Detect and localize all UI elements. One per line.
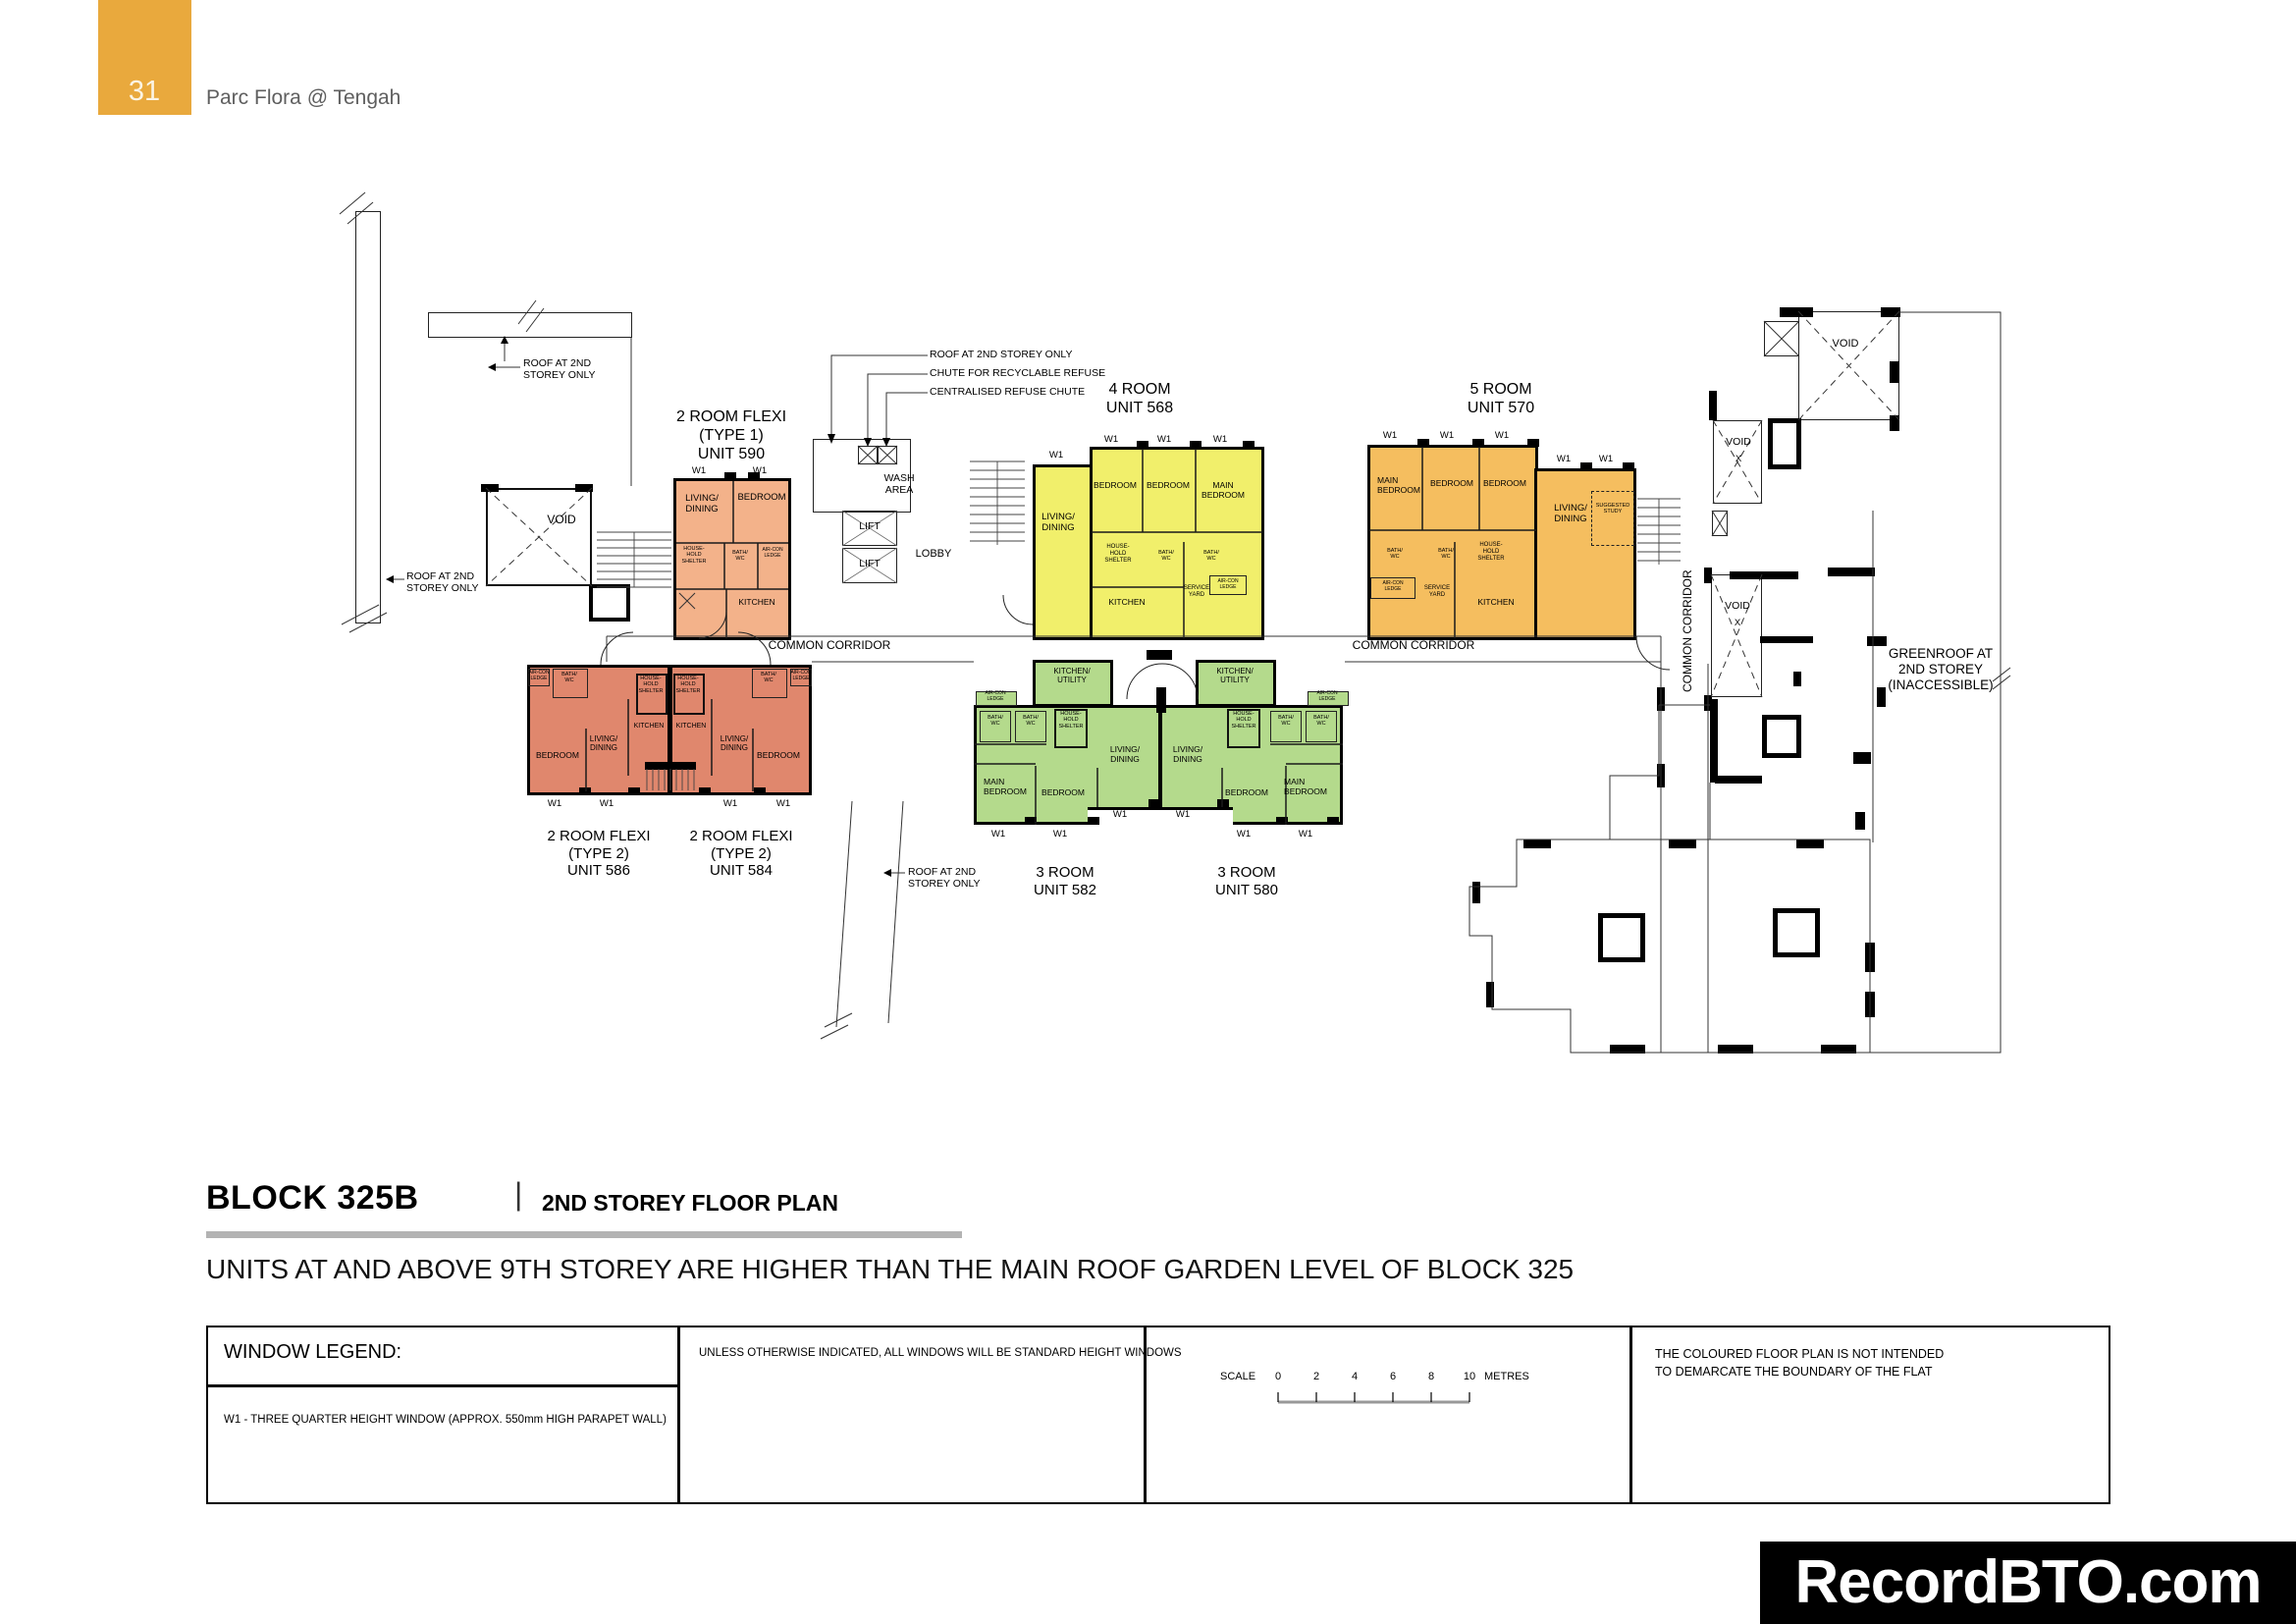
room-label-living: LIVING/DINING	[721, 734, 748, 753]
room-label-bath: BATH/WC	[732, 550, 748, 563]
room-label-kitchen: KITCHEN	[676, 723, 707, 731]
wall-segment	[1780, 307, 1813, 317]
legend-divider	[1629, 1326, 1632, 1504]
window-w1: W1	[1237, 829, 1251, 839]
coloured-note-line1: THE COLOURED FLOOR PLAN IS NOT INTENDED	[1655, 1347, 1944, 1362]
suggested-study-outline	[1591, 491, 1634, 546]
window-pier	[1217, 799, 1229, 807]
unit-584-title: 2 ROOM FLEXI (TYPE 2) UNIT 584	[689, 828, 792, 880]
wall-segment	[1715, 776, 1762, 784]
window-w1: W1	[1113, 809, 1127, 820]
void-room-3	[1711, 574, 1762, 697]
callout-refuse-chute: CENTRALISED REFUSE CHUTE	[930, 386, 1085, 398]
room-label-bath: BATH/WC	[1158, 550, 1174, 563]
lobby-label: LOBBY	[916, 548, 952, 561]
room-label-bath: BATH/WC	[561, 672, 577, 684]
wall-segment	[1855, 812, 1865, 830]
wall-segment	[1610, 1045, 1645, 1054]
wall-segment	[1709, 391, 1717, 420]
room-label-kitchen-utility: KITCHEN/UTILITY	[1053, 667, 1090, 685]
w1-definition: W1 - THREE QUARTER HEIGHT WINDOW (APPROX…	[224, 1414, 667, 1428]
window-pier	[699, 787, 711, 795]
project-name: Parc Flora @ Tengah	[206, 86, 400, 111]
window-pier	[1190, 441, 1201, 449]
wall-segment	[1821, 1045, 1856, 1054]
roof-strip-horizontal	[428, 312, 632, 338]
room-label-bath: BATH/WC	[1313, 715, 1329, 728]
wall-segment	[1704, 568, 1712, 583]
window-w1: W1	[1299, 829, 1312, 839]
scale-label: SCALE	[1220, 1371, 1255, 1383]
scale-tick: 8	[1428, 1371, 1434, 1383]
room-label-service-yard: SERVICEYARD	[1184, 585, 1209, 599]
scale-unit: METRES	[1484, 1371, 1529, 1383]
unit-570-main-wing	[1367, 445, 1538, 640]
scale-tick: 10	[1464, 1371, 1475, 1383]
room-label-household-shelter: HOUSE-HOLDSHELTER	[1477, 542, 1504, 563]
wall-segment	[1730, 571, 1798, 579]
room-label-household-shelter: HOUSE-HOLDSHELTER	[1104, 544, 1131, 565]
scale-tick: 4	[1352, 1371, 1358, 1383]
room-label-aircon: AIR-CONLEDGE	[1316, 691, 1337, 703]
window-w1: W1	[991, 829, 1005, 839]
room-label-bedroom: BEDROOM	[1147, 480, 1190, 490]
room-label-living: LIVING/DINING	[1110, 744, 1140, 764]
window-pier	[1025, 817, 1037, 825]
shaft-box	[1762, 715, 1801, 758]
void-label: VOID	[1833, 338, 1859, 351]
room-label-kitchen: KITCHEN	[738, 597, 774, 607]
wall-segment	[1523, 839, 1551, 848]
room-label-main-bedroom: MAINBEDROOM	[1377, 475, 1420, 495]
wash-area-label: WASH AREA	[883, 472, 914, 497]
legend-header-divider	[206, 1384, 677, 1387]
wall-segment	[1156, 687, 1166, 713]
shaft-box	[1768, 418, 1801, 469]
room-label-living: LIVING/DINING	[685, 493, 719, 514]
wall-segment	[1796, 839, 1824, 848]
room-label-aircon: AIR-CONLEDGE	[1382, 581, 1403, 593]
unit-582-title: 3 ROOM UNIT 582	[1034, 864, 1096, 898]
scale-tick: 6	[1390, 1371, 1396, 1383]
window-pier	[1088, 817, 1099, 825]
window-w1: W1	[1495, 430, 1509, 441]
void-label: VOID	[547, 513, 575, 526]
greenroof-label: GREENROOF AT 2ND STOREY (INACCESSIBLE)	[1888, 646, 1993, 693]
coloured-note-line2: TO DEMARCATE THE BOUNDARY OF THE FLAT	[1655, 1365, 1932, 1380]
room-label-kitchen-utility: KITCHEN/UTILITY	[1216, 667, 1253, 685]
unit-580-title: 3 ROOM UNIT 580	[1215, 864, 1278, 898]
room-label-bath: BATH/WC	[1438, 548, 1454, 561]
room-label-bath: BATH/WC	[1203, 550, 1219, 563]
shaft-box	[1598, 913, 1645, 962]
legend-divider	[677, 1326, 680, 1504]
room-label-aircon: AIR-CONLEDGE	[790, 671, 811, 682]
window-w1: W1	[1157, 434, 1171, 445]
room-label-living: LIVING/DINING	[1173, 744, 1202, 764]
unit-568-living-wing	[1033, 464, 1094, 640]
window-w1: W1	[723, 798, 737, 809]
window-w1: W1	[600, 798, 614, 809]
void-label: VOID	[1726, 436, 1751, 448]
window-w1: W1	[1176, 809, 1190, 820]
unit-568-title: 4 ROOM UNIT 568	[1106, 381, 1173, 418]
wall-segment	[1865, 943, 1875, 972]
room-label-bedroom: BEDROOM	[1094, 480, 1137, 490]
wall-segment	[1710, 699, 1718, 783]
wall-segment	[1890, 415, 1899, 431]
void-x: X	[1735, 618, 1740, 628]
common-corridor-label-vertical: COMMON CORRIDOR	[1681, 535, 1698, 692]
page-number: 31	[129, 75, 160, 108]
common-corridor-label: COMMON CORRIDOR	[1353, 638, 1475, 652]
callout-roof: ROOF AT 2ND STOREY ONLY	[930, 349, 1072, 360]
room-label-main-bedroom: MAINBEDROOM	[1201, 480, 1245, 500]
room-label-service-yard: SERVICEYARD	[1424, 585, 1450, 599]
wall-segment	[1657, 764, 1665, 787]
room-label-bath: BATH/WC	[761, 672, 776, 684]
wall-segment	[481, 484, 499, 492]
window-w1: W1	[692, 465, 706, 476]
storey-title: 2ND STOREY FLOOR PLAN	[542, 1190, 838, 1217]
window-w1: W1	[1049, 450, 1063, 460]
room-label-household-shelter: HOUSE-HOLDSHELTER	[676, 676, 701, 694]
void-label: VOID	[1725, 600, 1750, 612]
window-w1: W1	[753, 465, 767, 476]
room-label-bath: BATH/WC	[1387, 548, 1403, 561]
annotation-roof-3: ROOF AT 2ND STOREY ONLY	[908, 866, 981, 891]
window-pier	[1137, 441, 1148, 449]
recyclable-chute-box	[858, 446, 878, 464]
unit-590-title: 2 ROOM FLEXI (TYPE 1) UNIT 590	[676, 408, 786, 464]
room-label-aircon: AIR-CONLEDGE	[762, 548, 782, 560]
party-wall	[1158, 705, 1162, 807]
window-pier	[1417, 439, 1429, 447]
title-underline	[206, 1231, 962, 1238]
wall-segment	[1657, 687, 1665, 711]
window-w1: W1	[1599, 454, 1613, 464]
wall-segment	[1669, 839, 1696, 848]
callout-recyclable-chute: CHUTE FOR RECYCLABLE REFUSE	[930, 367, 1105, 379]
storey-note: UNITS AT AND ABOVE 9TH STOREY ARE HIGHER…	[206, 1253, 1574, 1285]
room-label-bath: BATH/WC	[1023, 715, 1039, 728]
room-label-household-shelter: HOUSE-HOLDSHELTER	[1059, 711, 1084, 730]
watermark-banner: RecordBTO.com	[1760, 1542, 2296, 1624]
living-bay-notch	[1088, 807, 1233, 827]
room-label-living: LIVING/DINING	[590, 734, 617, 753]
wall-segment	[1793, 672, 1801, 686]
room-label-bedroom: BEDROOM	[1430, 478, 1473, 488]
window-pier	[1580, 462, 1592, 470]
wall-segment	[575, 484, 593, 492]
windows-note: UNLESS OTHERWISE INDICATED, ALL WINDOWS …	[699, 1347, 1182, 1361]
window-w1: W1	[548, 798, 561, 809]
window-w1: W1	[1213, 434, 1227, 445]
room-label-bedroom: BEDROOM	[1225, 787, 1268, 797]
room-label-kitchen: KITCHEN	[634, 723, 665, 731]
wall-segment	[1718, 1045, 1753, 1054]
wall-segment	[645, 762, 696, 770]
room-label-bedroom: BEDROOM	[757, 750, 800, 760]
wall-segment	[1472, 882, 1480, 903]
annotation-roof-2: ROOF AT 2ND STOREY ONLY	[406, 570, 479, 595]
room-label-kitchen: KITCHEN	[1477, 597, 1514, 607]
x-box	[1712, 511, 1728, 536]
void-room-left	[486, 488, 592, 586]
room-label-bedroom: BEDROOM	[737, 492, 785, 503]
window-pier	[628, 787, 640, 795]
window-pier	[1243, 441, 1255, 449]
refuse-chute-box	[878, 446, 897, 464]
room-label-living: LIVING/DINING	[1554, 503, 1587, 524]
stair-core-box	[589, 584, 630, 622]
wall-segment	[1147, 650, 1172, 660]
room-label-study: SUGGESTEDSTUDY	[1596, 503, 1630, 515]
window-pier	[1276, 817, 1288, 825]
window-pier	[1472, 439, 1484, 447]
window-w1: W1	[1104, 434, 1118, 445]
room-label-main-bedroom: MAINBEDROOM	[1284, 777, 1327, 796]
void-room-topright	[1798, 311, 1899, 420]
scale-tick: 0	[1275, 1371, 1281, 1383]
wall-segment	[1828, 568, 1875, 576]
wall-segment	[1877, 687, 1886, 707]
window-pier	[1327, 817, 1339, 825]
watermark-text: RecordBTO.com	[1794, 1548, 2261, 1616]
title-separator: |	[514, 1176, 522, 1214]
room-label-bedroom: BEDROOM	[1483, 478, 1526, 488]
window-pier	[1527, 439, 1539, 447]
wall-segment	[1853, 752, 1871, 764]
scale-tick: 2	[1313, 1371, 1319, 1383]
floor-plan-page: 31 Parc Flora @ Tengah	[0, 0, 2296, 1624]
block-title: BLOCK 325B	[206, 1178, 419, 1218]
window-pier	[579, 787, 591, 795]
unit-570-title: 5 ROOM UNIT 570	[1468, 381, 1534, 418]
room-label-aircon: AIR-CONLEDGE	[1217, 579, 1238, 591]
lift-label: LIFT	[859, 558, 881, 569]
window-pier	[754, 787, 766, 795]
window-legend-title: WINDOW LEGEND:	[224, 1341, 401, 1365]
window-w1: W1	[1440, 430, 1454, 441]
wall-segment	[1486, 982, 1494, 1007]
x-box	[1764, 321, 1799, 356]
window-pier	[1148, 799, 1160, 807]
party-wall	[667, 665, 672, 795]
room-label-household-shelter: HOUSE-HOLDSHELTER	[1232, 711, 1256, 730]
shaft-box	[1773, 908, 1820, 957]
room-label-kitchen: KITCHEN	[1108, 597, 1145, 607]
void-x: X	[1735, 454, 1741, 464]
window-w1: W1	[1383, 430, 1397, 441]
wall-segment	[1865, 992, 1875, 1017]
room-label-bath: BATH/WC	[1278, 715, 1294, 728]
wall-segment	[1890, 361, 1899, 383]
room-label-bath: BATH/WC	[988, 715, 1003, 728]
annotation-roof-1: ROOF AT 2ND STOREY ONLY	[523, 357, 596, 382]
window-w1: W1	[1557, 454, 1571, 464]
room-label-living: LIVING/DINING	[1041, 512, 1075, 533]
room-label-main-bedroom: MAINBEDROOM	[984, 777, 1027, 796]
room-label-aircon: AIR-CONLEDGE	[528, 671, 549, 682]
room-label-household-shelter: HOUSE-HOLDSHELTER	[639, 676, 664, 694]
window-w1: W1	[776, 798, 790, 809]
window-pier	[1623, 462, 1634, 470]
wall-segment	[1760, 636, 1813, 643]
room-label-household-shelter: HOUSE-HOLDSHELTER	[682, 546, 707, 565]
wall-segment	[1867, 636, 1887, 646]
room-label-bedroom: BEDROOM	[1041, 787, 1085, 797]
wall-segment	[1881, 307, 1900, 317]
roof-strip-vertical	[355, 211, 381, 623]
lift-label: LIFT	[859, 520, 881, 532]
common-corridor-label: COMMON CORRIDOR	[769, 638, 891, 652]
room-label-aircon: AIR-CONLEDGE	[985, 691, 1005, 703]
page-number-badge: 31	[98, 0, 191, 115]
window-pier	[724, 472, 736, 480]
room-label-bedroom: BEDROOM	[536, 750, 579, 760]
unit-586-title: 2 ROOM FLEXI (TYPE 2) UNIT 586	[547, 828, 650, 880]
window-w1: W1	[1053, 829, 1067, 839]
